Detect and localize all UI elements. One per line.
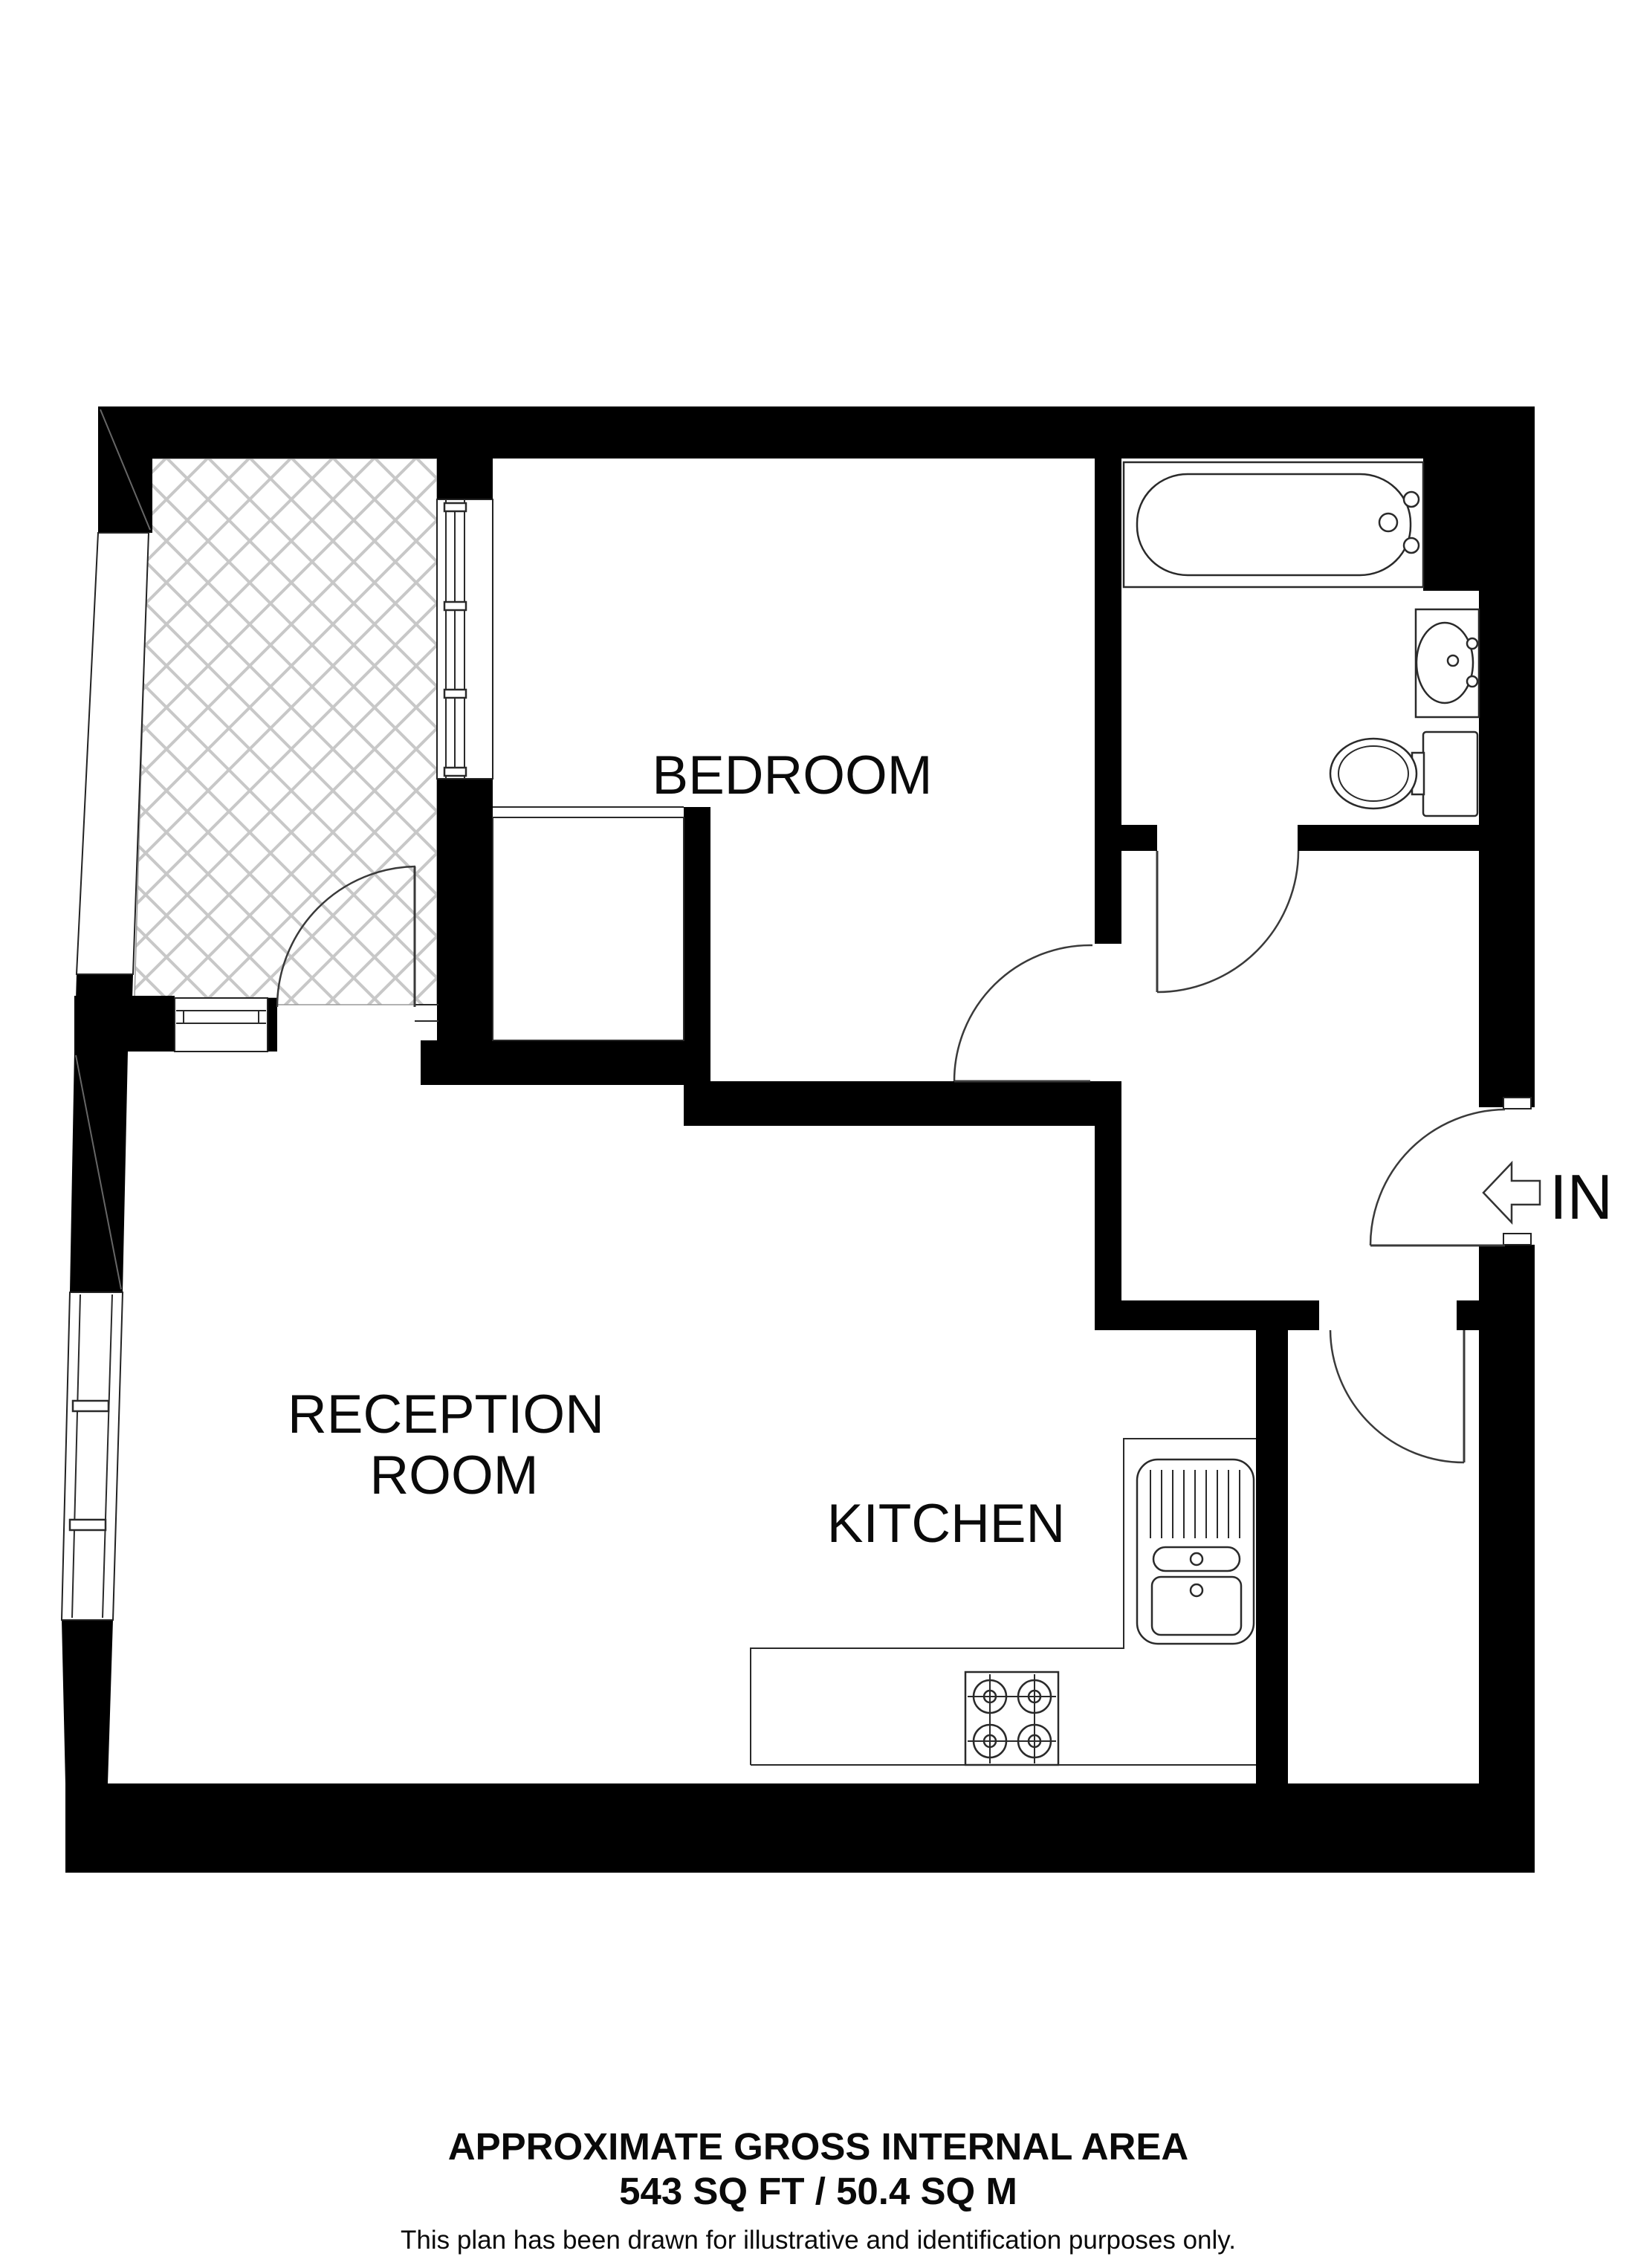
wall-window-column	[437, 779, 493, 1085]
wall-left-sill-block	[74, 996, 175, 1052]
wall-bath-chase	[1423, 459, 1479, 591]
toilet	[1330, 732, 1477, 816]
closet	[493, 807, 684, 1040]
bedroom-door	[954, 945, 1092, 1081]
footer-area-title: APPROXIMATE GROSS INTERNAL AREA	[448, 2125, 1188, 2168]
window-reception	[62, 1292, 123, 1620]
reception-label-line1: RECEPTION	[288, 1384, 604, 1445]
wall-bedroom-south	[710, 1081, 1121, 1126]
wall-kitchen-top-stub	[1457, 1300, 1535, 1330]
wall-kitchen-right	[1256, 1330, 1288, 1783]
balcony-hatched-area	[135, 459, 437, 1005]
wall-window-cap	[437, 456, 493, 499]
entrance-door	[1370, 1109, 1505, 1245]
kitchen-door	[1330, 1330, 1464, 1462]
wall-closet-right	[684, 807, 710, 1126]
floor-plan-page: BEDROOM RECEPTION ROOM KITCHEN IN APPROX…	[0, 0, 1635, 2268]
wall-bedroom-hall-upper	[1095, 851, 1121, 944]
wall-bathroom-left	[1095, 459, 1121, 825]
kitchen-sink	[1137, 1459, 1254, 1644]
bath-tap	[1404, 492, 1419, 507]
window-balcony-sill	[175, 998, 268, 1052]
wall-bathroom-bottom-right	[1298, 825, 1479, 851]
wall-balcony-door-jamb	[268, 998, 277, 1052]
basin-tap	[1467, 676, 1477, 687]
bath-plug	[1379, 513, 1397, 531]
basin-plug	[1448, 655, 1458, 666]
wall-right-upper	[1479, 406, 1535, 1107]
floor-plan: BEDROOM RECEPTION ROOM KITCHEN IN APPROX…	[0, 0, 1635, 2268]
entrance-jamb-top	[1503, 1098, 1531, 1109]
footer-area-value: 543 SQ FT / 50.4 SQ M	[619, 2170, 1017, 2212]
wall-bottom	[65, 1783, 1535, 1873]
kitchen-fixtures	[751, 1439, 1256, 1765]
entrance-label: IN	[1550, 1162, 1613, 1233]
arrow-left-icon	[1483, 1163, 1540, 1222]
wall-top	[98, 406, 1535, 459]
basin-tap	[1467, 638, 1477, 649]
kitchen-label: KITCHEN	[827, 1494, 1065, 1554]
reception-label-line2: ROOM	[369, 1445, 538, 1506]
wall-kitchen-top	[1095, 1300, 1319, 1330]
bathtub	[1124, 462, 1423, 587]
wall-bathroom-bottom-left	[1095, 825, 1157, 851]
entrance-jamb-bottom	[1503, 1234, 1531, 1245]
hob	[965, 1672, 1058, 1765]
bath-tap	[1404, 538, 1419, 553]
bathroom-door	[1157, 851, 1298, 992]
wash-basin	[1416, 609, 1479, 717]
wall-left-block-c	[62, 1620, 113, 1783]
bedroom-label: BEDROOM	[652, 745, 932, 806]
footer-disclaimer: This plan has been drawn for illustrativ…	[401, 2226, 1236, 2255]
